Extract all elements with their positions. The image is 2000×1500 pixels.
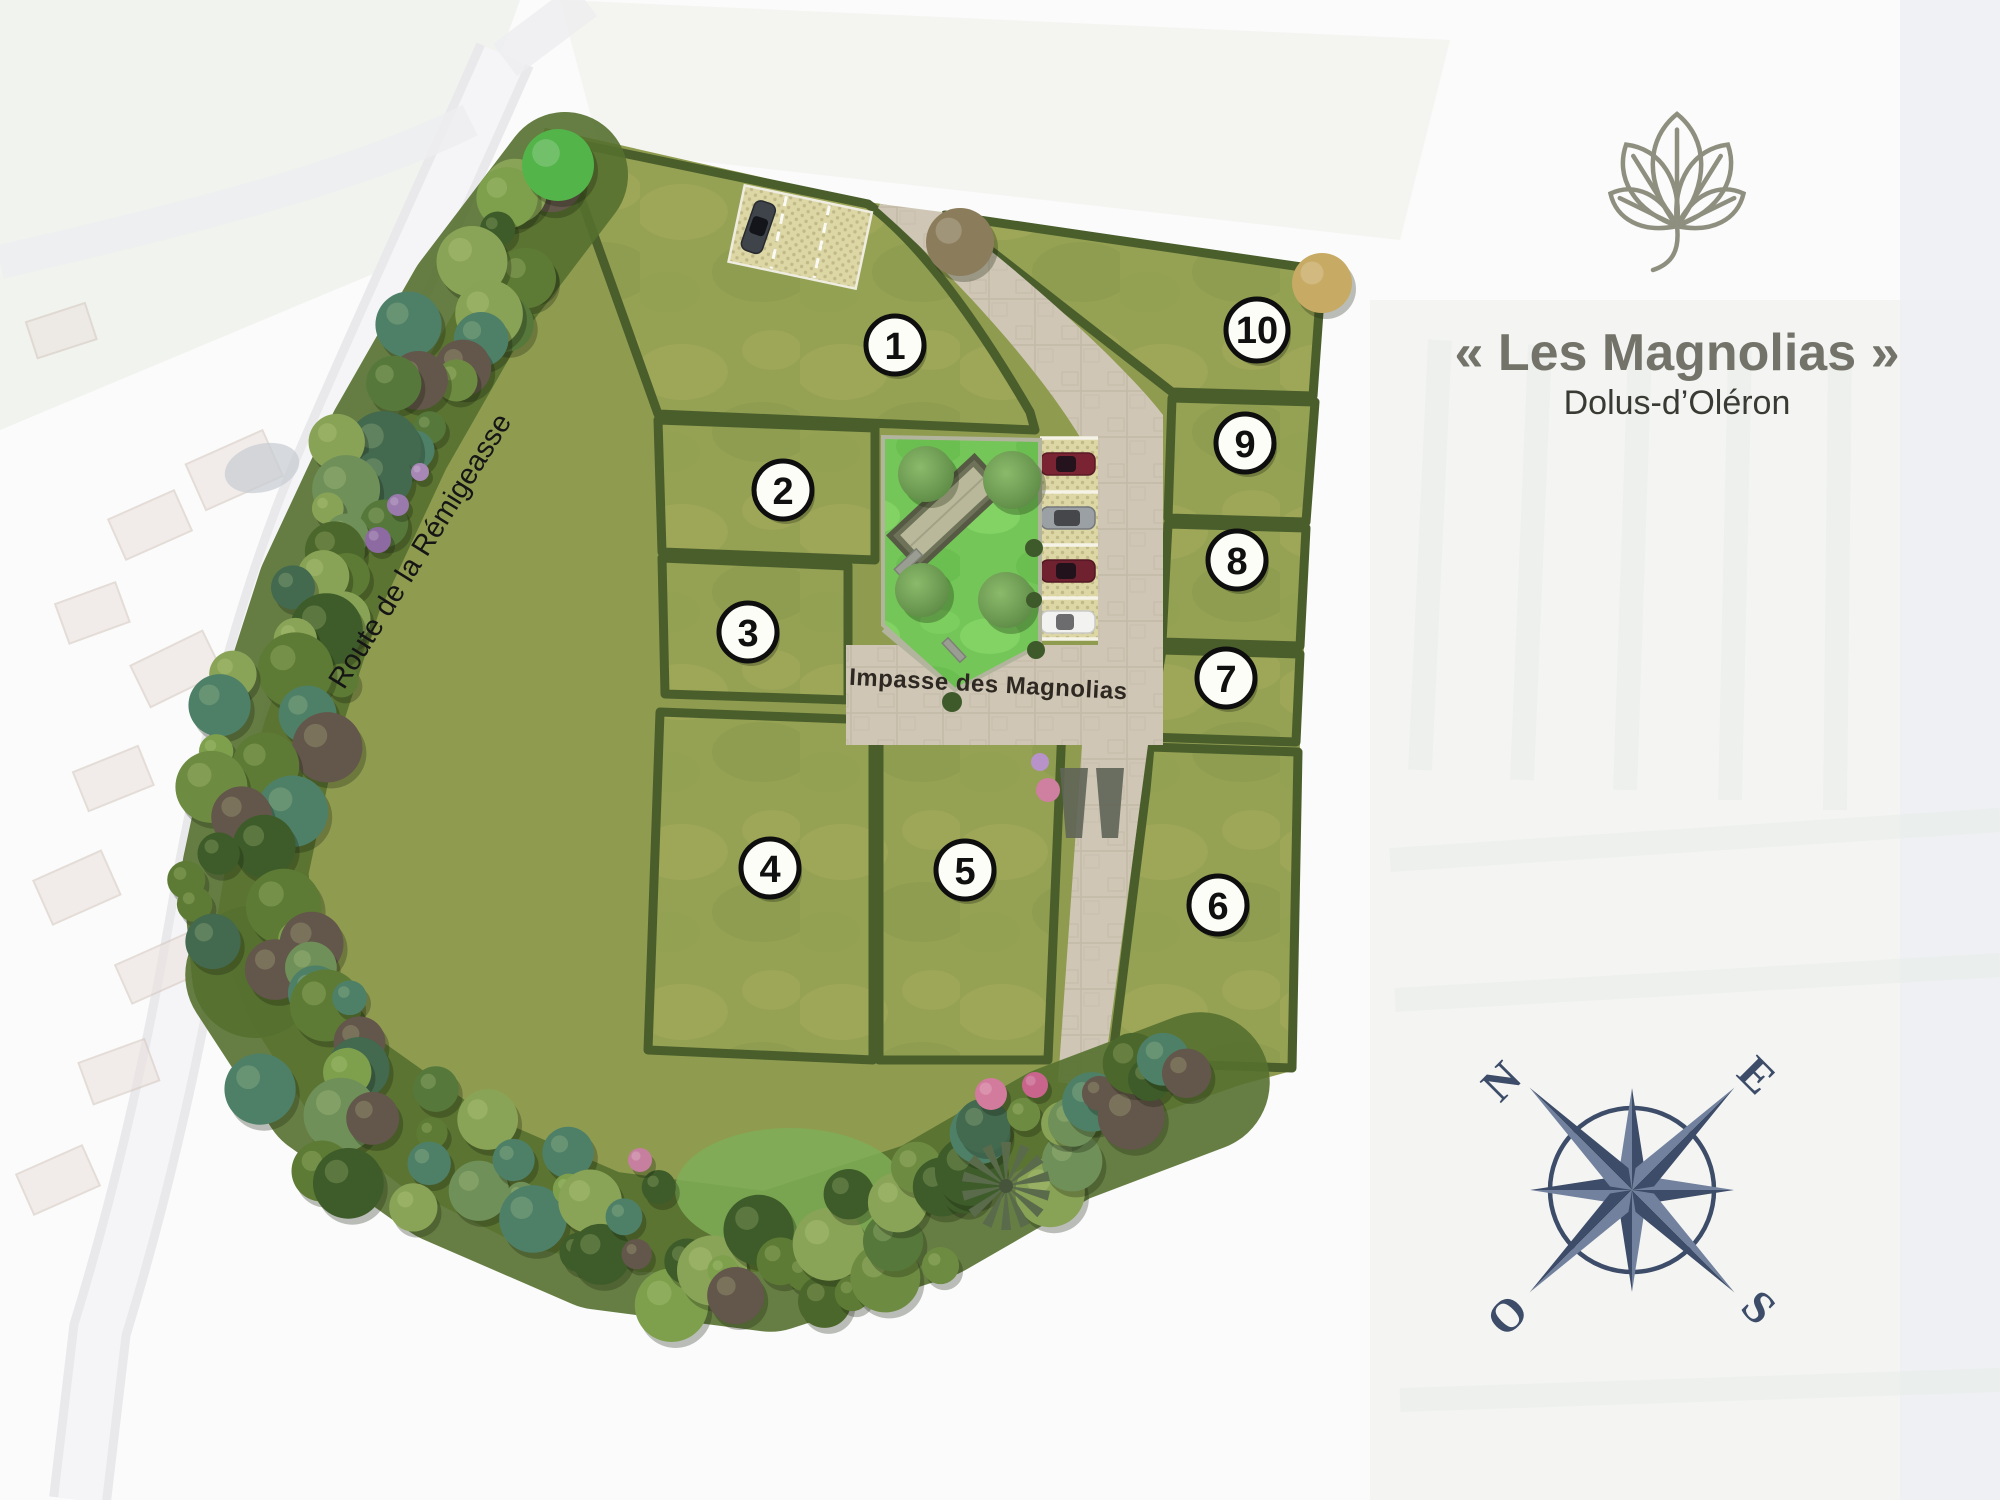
- magnolia-leaf-icon: [1603, 114, 1750, 270]
- development-title: « Les Magnolias »: [1454, 324, 1899, 382]
- lot-number: 4: [759, 849, 780, 891]
- car: [1041, 453, 1095, 475]
- lot-number: 10: [1236, 310, 1278, 352]
- car: [1041, 560, 1095, 582]
- development-subtitle: Dolus-d’Oléron: [1564, 384, 1791, 422]
- lot-number: 7: [1215, 659, 1236, 701]
- lot-number: 6: [1207, 886, 1228, 928]
- lot-number: 8: [1226, 541, 1247, 583]
- lot-number: 2: [772, 471, 793, 513]
- side-road-band: [505, 0, 585, 60]
- site-plan-canvas: 1 2 3 4 5 6 7 8 9 10 Rou: [0, 0, 2000, 1500]
- branding-panel: « Les Magnolias » Dolus-d’Oléron: [1454, 114, 1899, 422]
- lot-number: 5: [954, 851, 975, 893]
- compass-star-icon: [1529, 1087, 1734, 1292]
- site-plan-page: 1 2 3 4 5 6 7 8 9 10 Rou: [0, 0, 2000, 1500]
- car: [1041, 507, 1095, 529]
- field-patch: [1900, 0, 2000, 1500]
- car: [1041, 611, 1095, 633]
- lot-number: 1: [884, 326, 905, 368]
- lot-number: 3: [737, 613, 758, 655]
- lot-number: 9: [1234, 424, 1255, 466]
